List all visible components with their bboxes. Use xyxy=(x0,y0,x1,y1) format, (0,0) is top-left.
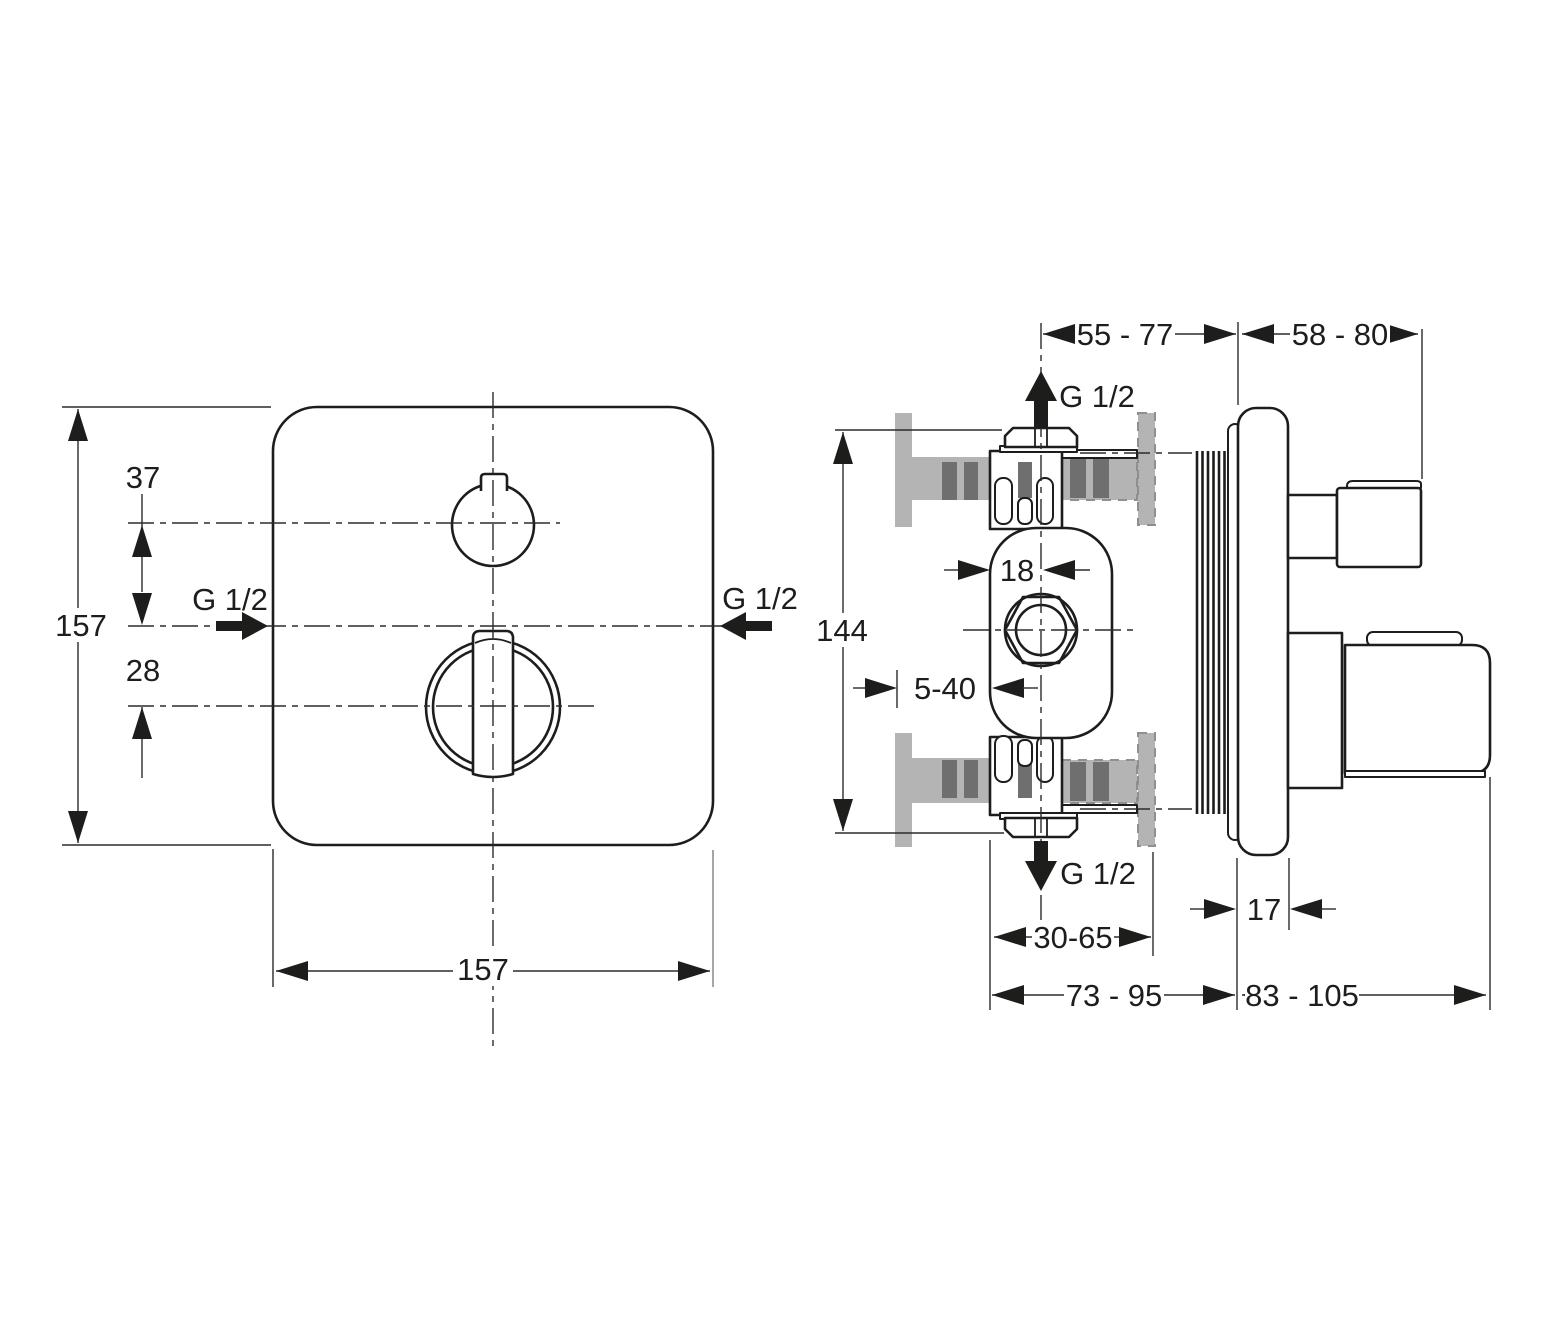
outer-span-label: 58 - 80 xyxy=(1292,317,1389,352)
front-height-label: 157 xyxy=(55,608,107,643)
side-view: G 1/2 G 1/2 55 - 77 58 - 80 xyxy=(814,317,1490,1013)
dim-front-top-offset: 37 xyxy=(119,460,167,625)
inlet-left-label: G 1/2 xyxy=(192,582,268,617)
port-bottom-arrow-icon xyxy=(1025,841,1057,891)
knob-top-body xyxy=(1337,488,1421,567)
inlet-right-label: G 1/2 xyxy=(722,581,798,616)
knob-bottom-stem xyxy=(1288,633,1342,788)
front-top-offset-label: 37 xyxy=(126,460,160,495)
threaded-sleeve xyxy=(1197,451,1230,814)
mixer-valve-dimension-drawing: 157 37 28 G 1/2 G 1/2 xyxy=(0,0,1563,1337)
plate-thickness-label: 17 xyxy=(1247,892,1281,927)
wall-face-bar-dashed xyxy=(1138,413,1155,525)
body-slot-dark xyxy=(1018,762,1032,798)
body-slot xyxy=(1037,478,1053,524)
wall-hatch xyxy=(1093,762,1109,801)
wall-thickness-label: 30-65 xyxy=(1033,920,1112,955)
wall-hatch xyxy=(1070,762,1086,801)
inlet-right-arrow-icon xyxy=(720,612,772,640)
wall-face-bar xyxy=(895,733,912,847)
wall-section-top-right xyxy=(1062,413,1155,525)
body-slot-small xyxy=(1018,740,1032,766)
wall-hatch xyxy=(1070,459,1086,498)
wall-hatch xyxy=(942,760,957,798)
wall-hatch xyxy=(942,462,957,500)
wall-face-bar-dashed xyxy=(1138,733,1155,846)
dim-front-bottom-offset: 28 xyxy=(119,653,167,778)
knob-top-stem xyxy=(1288,495,1337,558)
port-top-arrow-icon xyxy=(1025,371,1057,428)
front-bottom-offset-label: 28 xyxy=(126,653,160,688)
inner-span-label: 55 - 77 xyxy=(1077,317,1174,352)
body-slot-small xyxy=(1018,498,1032,524)
port-bottom: G 1/2 xyxy=(1025,841,1136,891)
wall-hatch xyxy=(964,462,978,500)
wall-plate xyxy=(1238,408,1288,855)
knob-top-profile xyxy=(1288,481,1421,567)
inlet-right: G 1/2 xyxy=(720,581,798,640)
body-slot xyxy=(995,736,1012,782)
front-width-label: 157 xyxy=(457,952,509,987)
front-view: 157 37 28 G 1/2 G 1/2 xyxy=(51,392,798,1048)
port-top-label: G 1/2 xyxy=(1059,379,1135,414)
diverter-knob-notch xyxy=(481,474,507,491)
inner-depth-label: 73 - 95 xyxy=(1066,978,1163,1013)
inlet-left: G 1/2 xyxy=(192,582,268,640)
body-height-label: 144 xyxy=(816,613,868,648)
knob-bottom-base-line xyxy=(1345,771,1485,777)
outer-depth-label: 83 - 105 xyxy=(1245,978,1359,1013)
knob-bottom-profile xyxy=(1288,632,1490,788)
port-bottom-label: G 1/2 xyxy=(1060,856,1136,891)
body-slot xyxy=(995,478,1012,524)
dim-inner-depth: 73 - 95 xyxy=(992,978,1235,1013)
wall-hatch xyxy=(1093,459,1109,498)
center-offset-label: 18 xyxy=(1000,553,1034,588)
wall-hatch xyxy=(964,760,978,798)
knob-bottom-body xyxy=(1345,645,1490,773)
body-slot xyxy=(1037,736,1053,782)
technical-drawing-page: 157 37 28 G 1/2 G 1/2 xyxy=(0,0,1563,1337)
wall-section-bottom-left xyxy=(895,733,990,847)
port-top: G 1/2 xyxy=(1025,371,1135,428)
plaster-depth-label: 5-40 xyxy=(914,671,976,706)
body-slot-dark xyxy=(1018,462,1032,498)
